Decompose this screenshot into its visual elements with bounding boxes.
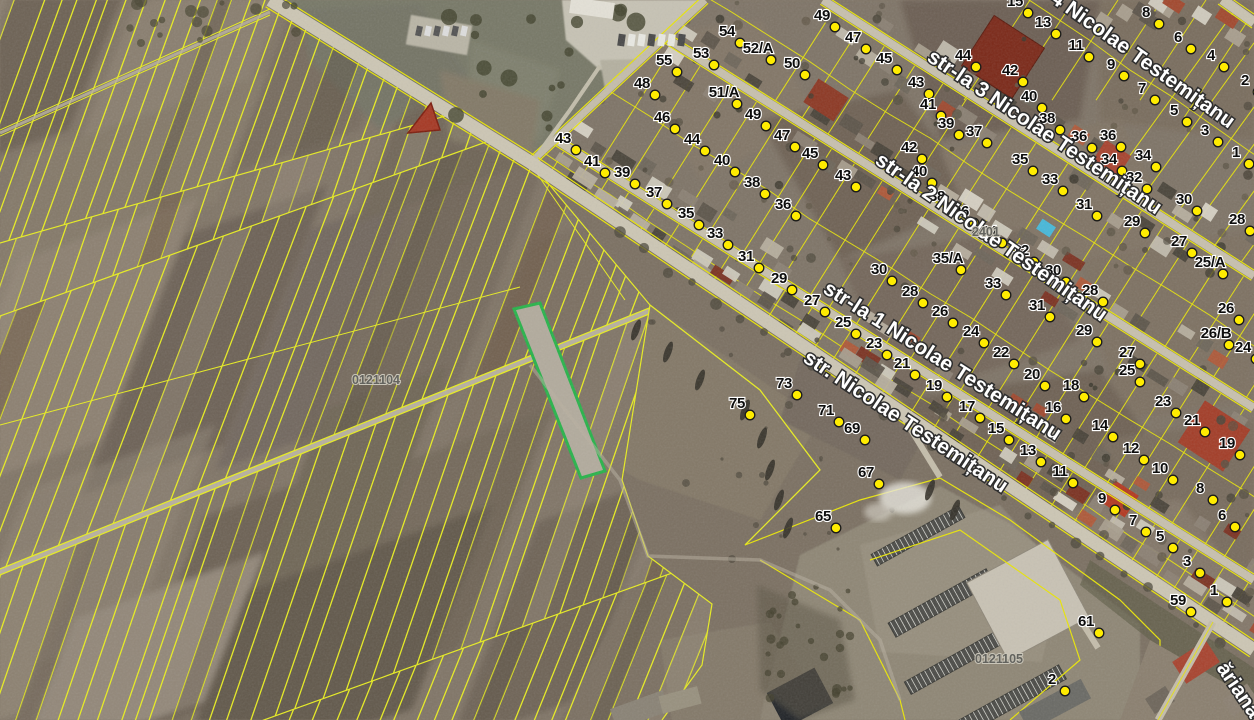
svg-text:41: 41 — [920, 96, 936, 113]
svg-text:35/A: 35/A — [933, 250, 964, 267]
svg-text:33: 33 — [985, 275, 1001, 292]
svg-text:50: 50 — [784, 55, 800, 72]
svg-text:52/A: 52/A — [743, 40, 774, 57]
svg-text:3: 3 — [1183, 553, 1191, 570]
svg-text:26/B: 26/B — [1201, 325, 1232, 342]
svg-text:75: 75 — [729, 395, 745, 412]
svg-text:65: 65 — [815, 508, 831, 525]
svg-text:2401: 2401 — [972, 225, 1000, 239]
svg-text:27: 27 — [804, 292, 820, 309]
svg-text:26: 26 — [932, 303, 948, 320]
svg-text:7: 7 — [1138, 80, 1146, 97]
svg-text:23: 23 — [1155, 393, 1171, 410]
svg-text:35: 35 — [678, 205, 694, 222]
svg-text:39: 39 — [614, 164, 630, 181]
svg-text:48: 48 — [634, 75, 650, 92]
svg-text:35: 35 — [1012, 151, 1028, 168]
svg-text:43: 43 — [835, 167, 851, 184]
svg-text:0121105: 0121105 — [975, 652, 1023, 666]
svg-text:34: 34 — [1135, 147, 1152, 164]
svg-text:23: 23 — [866, 335, 882, 352]
svg-text:19: 19 — [1219, 435, 1235, 452]
svg-text:21: 21 — [1184, 412, 1200, 429]
svg-text:49: 49 — [814, 7, 830, 24]
svg-text:5: 5 — [1170, 102, 1178, 119]
svg-text:42: 42 — [901, 139, 917, 156]
svg-text:18: 18 — [1063, 377, 1079, 394]
svg-text:11: 11 — [1052, 463, 1067, 480]
svg-text:14: 14 — [1092, 417, 1109, 434]
svg-text:9: 9 — [1107, 56, 1115, 73]
svg-text:20: 20 — [1024, 366, 1040, 383]
svg-text:24: 24 — [1235, 339, 1252, 356]
svg-text:21: 21 — [894, 355, 910, 372]
svg-text:3: 3 — [1201, 122, 1209, 139]
svg-text:44: 44 — [684, 131, 701, 148]
svg-text:61: 61 — [1078, 613, 1094, 630]
svg-text:2: 2 — [1241, 72, 1249, 89]
svg-text:1: 1 — [1232, 144, 1240, 161]
svg-text:28: 28 — [1229, 211, 1245, 228]
svg-text:30: 30 — [1176, 191, 1192, 208]
svg-text:25/A: 25/A — [1195, 254, 1226, 271]
svg-text:71: 71 — [818, 402, 834, 419]
svg-text:12: 12 — [1123, 440, 1139, 457]
svg-text:51/A: 51/A — [709, 84, 740, 101]
svg-text:47: 47 — [774, 127, 790, 144]
svg-text:13: 13 — [1020, 442, 1036, 459]
svg-text:31: 31 — [738, 248, 754, 265]
svg-text:1: 1 — [1210, 582, 1218, 599]
svg-text:54: 54 — [719, 23, 736, 40]
svg-text:13: 13 — [1035, 14, 1051, 31]
svg-text:36: 36 — [775, 196, 791, 213]
svg-text:11: 11 — [1068, 37, 1083, 54]
svg-text:5: 5 — [1156, 528, 1164, 545]
svg-text:37: 37 — [646, 184, 662, 201]
svg-text:69: 69 — [844, 420, 860, 437]
svg-text:28: 28 — [902, 283, 918, 300]
svg-text:41: 41 — [584, 153, 600, 170]
svg-text:29: 29 — [1076, 322, 1092, 339]
svg-text:26: 26 — [1218, 300, 1234, 317]
svg-text:7: 7 — [1129, 512, 1137, 529]
svg-text:53: 53 — [693, 45, 709, 62]
svg-text:47: 47 — [845, 29, 861, 46]
svg-text:9: 9 — [1098, 490, 1106, 507]
svg-text:10: 10 — [1152, 460, 1168, 477]
svg-text:8: 8 — [1142, 4, 1150, 21]
svg-text:25: 25 — [835, 314, 851, 331]
svg-text:45: 45 — [876, 50, 892, 67]
svg-text:73: 73 — [776, 375, 792, 392]
svg-text:49: 49 — [745, 106, 761, 123]
svg-text:40: 40 — [714, 152, 730, 169]
svg-text:46: 46 — [654, 109, 670, 126]
svg-text:33: 33 — [1042, 171, 1058, 188]
svg-text:33: 33 — [707, 225, 723, 242]
svg-text:42: 42 — [1002, 62, 1018, 79]
svg-text:39: 39 — [938, 115, 954, 132]
svg-text:45: 45 — [802, 145, 818, 162]
svg-text:43: 43 — [555, 130, 571, 147]
svg-text:27: 27 — [1119, 344, 1135, 361]
svg-text:0121104: 0121104 — [352, 373, 400, 387]
svg-text:15: 15 — [988, 420, 1004, 437]
svg-text:6: 6 — [1218, 507, 1226, 524]
svg-text:22: 22 — [993, 344, 1009, 361]
svg-text:67: 67 — [858, 464, 874, 481]
svg-text:4: 4 — [1207, 47, 1216, 64]
svg-text:31: 31 — [1029, 297, 1045, 314]
svg-text:38: 38 — [744, 174, 760, 191]
svg-text:37: 37 — [966, 123, 982, 140]
svg-text:59: 59 — [1170, 592, 1186, 609]
svg-text:55: 55 — [656, 52, 672, 69]
svg-text:40: 40 — [1021, 88, 1037, 105]
svg-text:27: 27 — [1171, 233, 1187, 250]
svg-text:29: 29 — [771, 270, 787, 287]
svg-text:24: 24 — [963, 323, 980, 340]
svg-text:15: 15 — [1007, 0, 1023, 10]
svg-text:31: 31 — [1076, 196, 1092, 213]
svg-text:29: 29 — [1124, 213, 1140, 230]
svg-text:8: 8 — [1196, 480, 1204, 497]
svg-text:19: 19 — [926, 377, 942, 394]
svg-text:43: 43 — [908, 74, 924, 91]
svg-text:30: 30 — [871, 261, 887, 278]
svg-text:25: 25 — [1119, 362, 1135, 379]
svg-text:2: 2 — [1048, 671, 1056, 688]
svg-text:17: 17 — [959, 398, 975, 415]
svg-text:6: 6 — [1174, 29, 1182, 46]
svg-text:36: 36 — [1100, 127, 1116, 144]
